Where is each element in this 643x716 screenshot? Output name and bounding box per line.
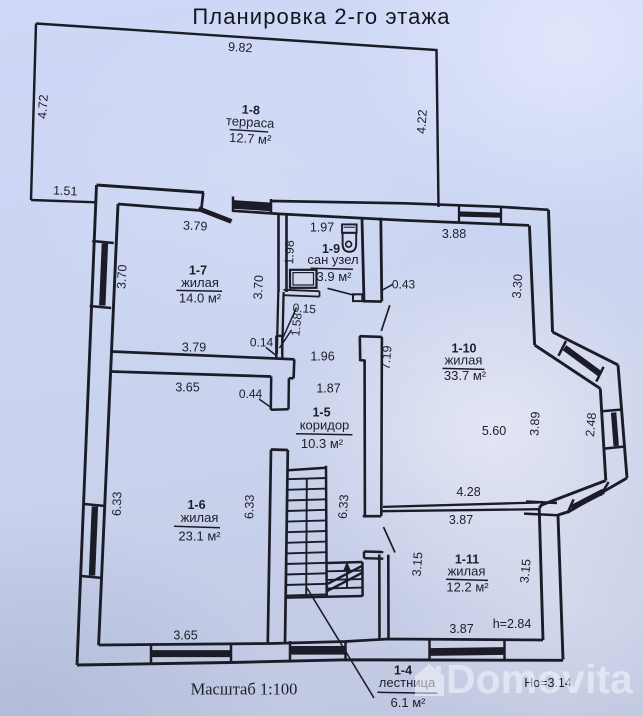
svg-text:1.51: 1.51 [53,183,78,198]
svg-text:7.19: 7.19 [378,345,394,371]
svg-text:6.33: 6.33 [242,494,257,519]
svg-text:Масштаб 1:100: Масштаб 1:100 [191,680,298,699]
svg-text:33.7 м²: 33.7 м² [444,368,487,383]
svg-text:3.79: 3.79 [182,341,206,355]
svg-text:4.22: 4.22 [414,109,430,134]
svg-text:3.89: 3.89 [527,411,542,436]
svg-text:сан узел: сан узел [307,252,358,267]
svg-text:1.96: 1.96 [310,350,334,364]
svg-text:жилая: жилая [181,275,219,290]
svg-text:жилая: жилая [181,510,219,525]
svg-text:10.3 м²: 10.3 м² [301,436,344,451]
svg-text:1.97: 1.97 [310,221,334,235]
svg-text:жилая: жилая [445,353,483,368]
svg-text:4.28: 4.28 [456,485,480,499]
svg-text:коридор: коридор [300,418,350,433]
svg-text:14.0 м²: 14.0 м² [179,291,222,306]
svg-text:3.87: 3.87 [449,622,473,636]
svg-text:3.70: 3.70 [251,275,266,300]
svg-text:3.87: 3.87 [449,513,473,527]
svg-text:12.7 м²: 12.7 м² [229,130,273,148]
svg-text:3.9 м²: 3.9 м² [317,269,353,284]
svg-text:h=2.84: h=2.84 [493,617,532,631]
svg-text:3.79: 3.79 [183,218,208,233]
svg-text:0.43: 0.43 [392,278,416,292]
svg-text:9.82: 9.82 [228,40,253,56]
svg-text:6.33: 6.33 [336,494,352,519]
svg-text:терраса: терраса [226,113,276,131]
svg-text:3.88: 3.88 [442,227,466,241]
svg-text:0.44: 0.44 [239,387,263,401]
svg-text:2.48: 2.48 [583,412,599,438]
svg-text:6.33: 6.33 [110,491,125,516]
svg-text:3.70: 3.70 [114,264,129,289]
svg-text:0.14: 0.14 [250,336,274,350]
svg-text:23.1 м²: 23.1 м² [178,529,221,544]
svg-text:3.15: 3.15 [517,558,533,584]
svg-text:4.72: 4.72 [35,94,51,119]
svg-text:1.87: 1.87 [316,382,340,396]
svg-text:12.2 м²: 12.2 м² [446,580,489,595]
svg-text:1.58: 1.58 [288,312,304,337]
svg-text:3.30: 3.30 [510,274,526,299]
svg-text:5.60: 5.60 [482,424,506,438]
svg-text:3.65: 3.65 [173,629,197,643]
svg-text:3.15: 3.15 [410,552,426,577]
svg-text:жилая: жилая [448,564,486,579]
svg-text:1.98: 1.98 [282,240,297,265]
svg-text:3.65: 3.65 [175,381,199,395]
